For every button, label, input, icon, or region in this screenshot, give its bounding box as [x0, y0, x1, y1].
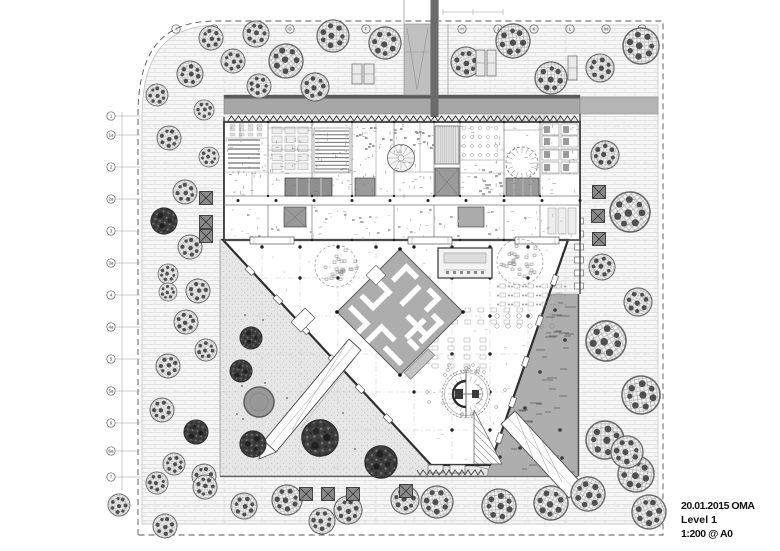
svg-text:K: K — [532, 27, 535, 32]
svg-text:A: A — [174, 27, 177, 32]
svg-text:6a: 6a — [108, 449, 114, 454]
svg-text:4a: 4a — [108, 325, 114, 330]
svg-text:5a: 5a — [108, 389, 114, 394]
svg-text:1:200 @ A0: 1:200 @ A0 — [681, 528, 733, 540]
svg-text:20.01.2015 OMA: 20.01.2015 OMA — [681, 500, 755, 512]
svg-text:Level 1: Level 1 — [681, 514, 717, 526]
svg-text:2a: 2a — [108, 197, 114, 202]
svg-text:H: H — [460, 27, 463, 32]
svg-text:F: F — [365, 27, 368, 32]
svg-text:M: M — [604, 27, 608, 32]
svg-text:3a: 3a — [108, 261, 114, 266]
svg-text:1a: 1a — [108, 133, 114, 138]
